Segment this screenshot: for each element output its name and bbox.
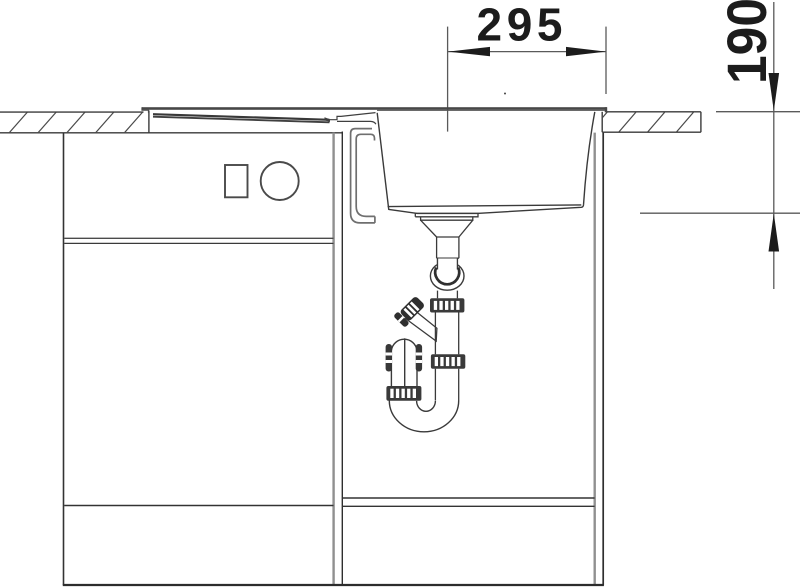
svg-text:295: 295 bbox=[477, 0, 563, 51]
svg-text:190: 190 bbox=[715, 0, 778, 84]
